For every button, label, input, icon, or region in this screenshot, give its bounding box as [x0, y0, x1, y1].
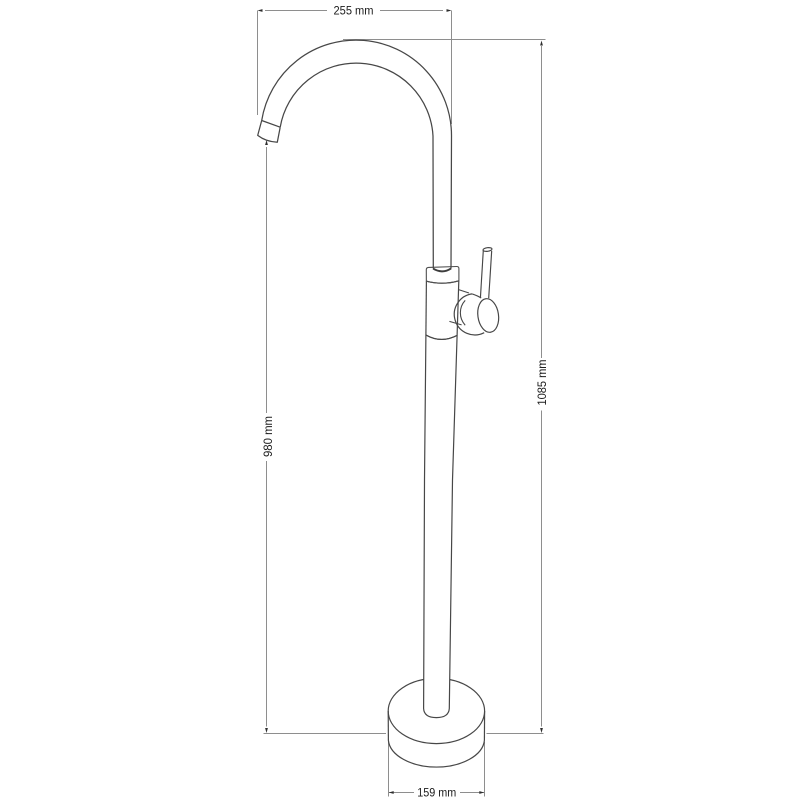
svg-text:980 mm: 980 mm: [261, 416, 275, 457]
svg-text:159 mm: 159 mm: [417, 785, 456, 799]
svg-text:255 mm: 255 mm: [334, 4, 374, 18]
svg-text:1085 mm: 1085 mm: [535, 360, 549, 406]
